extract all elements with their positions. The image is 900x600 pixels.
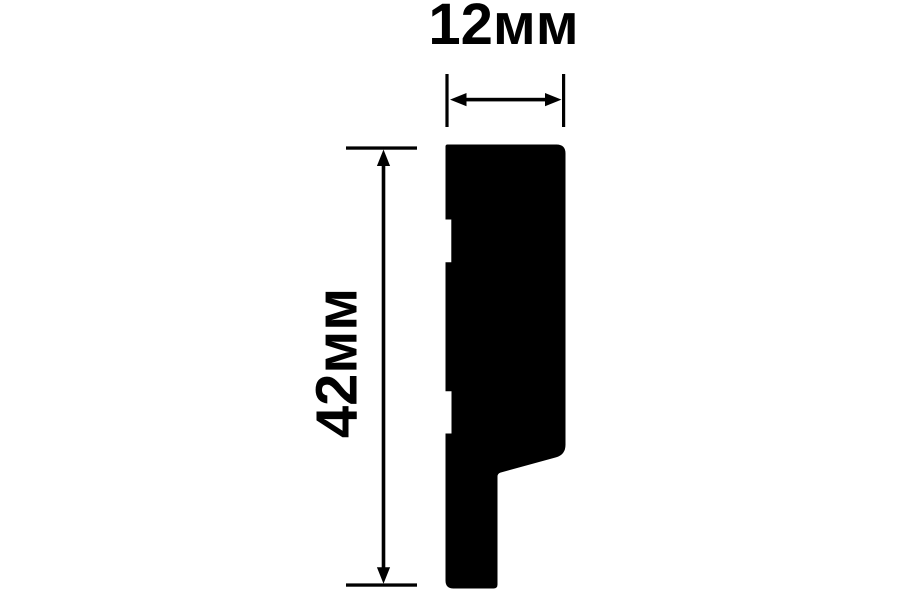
svg-text:12мм: 12мм bbox=[428, 0, 578, 57]
svg-text:42мм: 42мм bbox=[305, 288, 370, 438]
